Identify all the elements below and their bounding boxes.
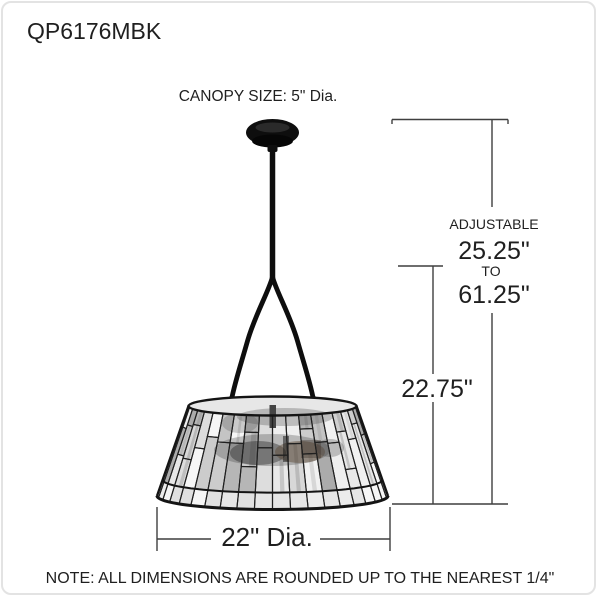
product-dimension-diagram: QP6176MBK CANOPY SIZE: 5" Dia. — [0, 0, 600, 600]
fixture-height-value: 22.75" — [401, 375, 472, 403]
canopy-size-label: CANOPY SIZE: 5" Dia. — [179, 88, 338, 105]
shade-diameter-value: 22" Dia. — [221, 522, 313, 552]
pendant-diagram-svg: QP6176MBK CANOPY SIZE: 5" Dia. — [0, 0, 600, 600]
dimensions-note: NOTE: ALL DIMENSIONS ARE ROUNDED UP TO T… — [46, 570, 555, 587]
canopy-icon — [246, 119, 299, 152]
pendant-fixture-illustration — [157, 119, 388, 510]
ceiling-reference-line — [392, 120, 508, 125]
downrod-icon — [270, 150, 276, 279]
mosaic-shade-icon — [157, 397, 388, 510]
adjustable-min-value: 25.25" — [458, 237, 529, 265]
model-number: QP6176MBK — [27, 18, 162, 44]
range-connector: TO — [481, 263, 500, 279]
adjustable-label: ADJUSTABLE — [449, 216, 538, 232]
adjustable-max-value: 61.25" — [458, 281, 529, 309]
support-arms-icon — [232, 277, 314, 409]
